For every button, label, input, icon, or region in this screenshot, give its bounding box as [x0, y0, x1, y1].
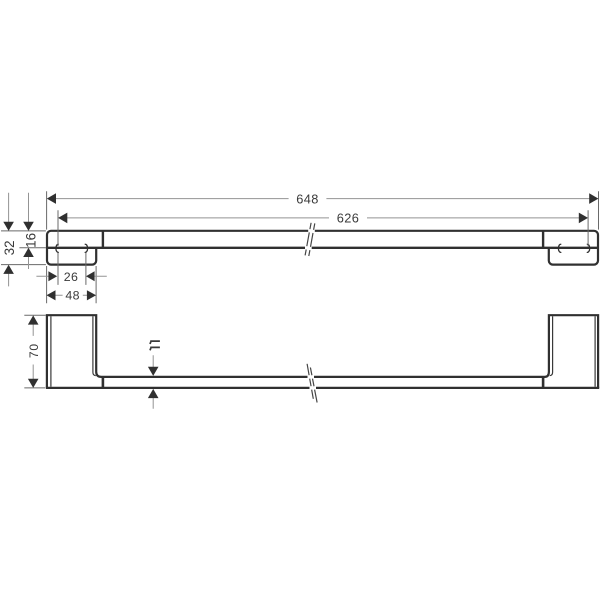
svg-text:26: 26: [64, 270, 79, 284]
svg-text:70: 70: [27, 343, 41, 358]
svg-text:648: 648: [296, 192, 319, 207]
svg-text:32: 32: [2, 240, 17, 255]
svg-text:16: 16: [23, 233, 38, 248]
svg-text:48: 48: [65, 289, 80, 303]
svg-text:626: 626: [337, 210, 360, 225]
